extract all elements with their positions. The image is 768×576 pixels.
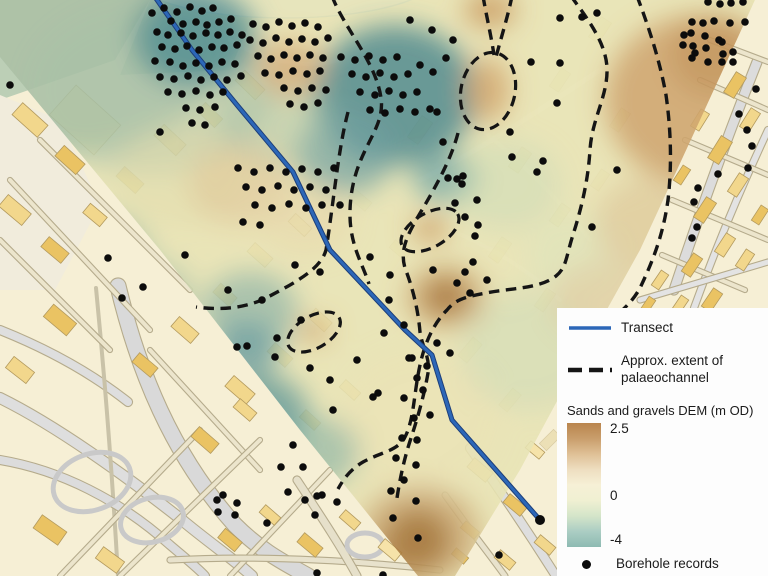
borehole-dot [214, 31, 222, 39]
borehole-dot [439, 138, 447, 146]
borehole-dot [156, 73, 164, 81]
borehole-dot [316, 67, 324, 75]
borehole-dot [224, 286, 232, 294]
borehole-dot [701, 32, 709, 40]
borehole-dot [718, 58, 726, 66]
borehole-dot [167, 17, 175, 25]
borehole-dot [231, 511, 239, 519]
borehole-dot [469, 258, 477, 266]
borehole-dot [495, 551, 503, 559]
borehole-dot [104, 254, 112, 262]
borehole-dot [406, 16, 414, 24]
borehole-dot [170, 75, 178, 83]
borehole-dot [201, 121, 209, 129]
borehole-dot [336, 201, 344, 209]
borehole-dot [459, 172, 467, 180]
dem-blob [412, 218, 448, 240]
borehole-dot-sample [582, 560, 591, 569]
dem-color-ramp-block: 2.5 0 -4 [567, 423, 768, 547]
borehole-dot [413, 88, 421, 96]
borehole-dot [444, 174, 452, 182]
borehole-dot [148, 9, 156, 17]
borehole-dot [446, 349, 454, 357]
borehole-dot [274, 182, 282, 190]
borehole-dot [290, 186, 298, 194]
borehole-dot [209, 4, 217, 12]
borehole-dot [226, 28, 234, 36]
borehole-dot [419, 386, 427, 394]
borehole-dot [385, 296, 393, 304]
borehole-dot [271, 353, 279, 361]
borehole-dot [398, 434, 406, 442]
borehole-dot [379, 56, 387, 64]
borehole-dot [539, 157, 547, 165]
borehole-dot [381, 109, 389, 117]
borehole-dot [729, 58, 737, 66]
borehole-dot [314, 99, 322, 107]
borehole-dot [613, 166, 621, 174]
borehole-dot [362, 73, 370, 81]
borehole-dot [389, 514, 397, 522]
ramp-max-label: 2.5 [610, 421, 629, 438]
borehole-dot [461, 213, 469, 221]
borehole-dot [298, 35, 306, 43]
borehole-dot [289, 67, 297, 75]
borehole-dot [374, 389, 382, 397]
borehole-dot [179, 20, 187, 28]
borehole-dot [726, 19, 734, 27]
borehole-dot [748, 142, 756, 150]
borehole-dot [679, 41, 687, 49]
borehole-dot [326, 376, 334, 384]
borehole-dot [449, 36, 457, 44]
borehole-dot [322, 186, 330, 194]
borehole-dot [680, 31, 688, 39]
borehole-dot [263, 519, 271, 527]
borehole-dot [386, 271, 394, 279]
borehole-dot [242, 183, 250, 191]
palaeochannel-dash-sample [567, 364, 615, 376]
legend-row-palaeochannel: Approx. extent of palaeochannel [567, 353, 768, 387]
borehole-dot [308, 84, 316, 92]
borehole-dot [251, 201, 259, 209]
borehole-dot [506, 128, 514, 136]
borehole-dot [741, 18, 749, 26]
borehole-dot [118, 294, 126, 302]
borehole-dot [412, 461, 420, 469]
borehole-dot [380, 329, 388, 337]
borehole-dot [220, 44, 228, 52]
borehole-dot [286, 100, 294, 108]
borehole-dot [188, 119, 196, 127]
borehole-dot [556, 14, 564, 22]
borehole-dot [366, 253, 374, 261]
borehole-dot [719, 50, 727, 58]
borehole-dot [266, 164, 274, 172]
borehole-dot [306, 51, 314, 59]
borehole-dot [215, 18, 223, 26]
map-figure: Transect Approx. extent of palaeochannel… [0, 0, 768, 576]
dem-blob [299, 321, 329, 341]
borehole-dot [693, 223, 701, 231]
borehole-dot [259, 39, 267, 47]
borehole-dot [164, 31, 172, 39]
dem-ramp-labels: 2.5 0 -4 [610, 423, 654, 547]
borehole-dot [300, 103, 308, 111]
borehole-dot [214, 508, 222, 516]
borehole-dot [718, 38, 726, 46]
borehole-dot [744, 164, 752, 172]
borehole-dot [208, 43, 216, 51]
borehole-dot [6, 81, 14, 89]
borehole-dot [285, 38, 293, 46]
borehole-dot [433, 339, 441, 347]
borehole-dot [238, 31, 246, 39]
borehole-dot [433, 108, 441, 116]
borehole-dot [280, 51, 288, 59]
borehole-dot [353, 356, 361, 364]
map-legend: Transect Approx. extent of palaeochannel… [557, 308, 768, 576]
borehole-dot [280, 84, 288, 92]
borehole-dot [429, 266, 437, 274]
borehole-dot [203, 21, 211, 29]
borehole-dot [231, 60, 239, 68]
borehole-dot [297, 316, 305, 324]
borehole-dot [223, 76, 231, 84]
borehole-dot [322, 86, 330, 94]
borehole-dot [186, 3, 194, 11]
borehole-dot [593, 9, 601, 17]
borehole-dot [400, 394, 408, 402]
borehole-dot [196, 106, 204, 114]
borehole-dot [262, 23, 270, 31]
borehole-dot [195, 46, 203, 54]
borehole-dot [356, 88, 364, 96]
borehole-dot [192, 59, 200, 67]
borehole-dot [426, 105, 434, 113]
borehole-dot [405, 354, 413, 362]
borehole-dot [413, 436, 421, 444]
borehole-dot [410, 414, 418, 422]
borehole-dot [442, 54, 450, 62]
borehole-dot [151, 57, 159, 65]
borehole-dot [258, 186, 266, 194]
borehole-dot [288, 22, 296, 30]
borehole-dot [301, 496, 309, 504]
borehole-dot [423, 362, 431, 370]
borehole-dot [192, 18, 200, 26]
borehole-dot [311, 511, 319, 519]
borehole-dot [183, 42, 191, 50]
borehole-dot [556, 59, 564, 67]
borehole-dot [689, 42, 697, 50]
borehole-dot [413, 374, 421, 382]
borehole-dot [301, 19, 309, 27]
borehole-dot [318, 201, 326, 209]
borehole-dot [298, 165, 306, 173]
borehole-dot [553, 99, 561, 107]
borehole-dot [213, 496, 221, 504]
borehole-dot [316, 268, 324, 276]
borehole-dot [392, 454, 400, 462]
borehole-dot [139, 283, 147, 291]
borehole-dot [211, 103, 219, 111]
borehole-dot [243, 342, 251, 350]
borehole-dot [160, 4, 168, 12]
borehole-dot [428, 26, 436, 34]
borehole-dot [416, 61, 424, 69]
borehole-dot [275, 18, 283, 26]
borehole-dot [348, 70, 356, 78]
borehole-dot [714, 170, 722, 178]
borehole-dot [393, 53, 401, 61]
borehole-dot [400, 476, 408, 484]
transect-line-sample [567, 323, 615, 333]
borehole-dot [254, 52, 262, 60]
borehole-dot [710, 17, 718, 25]
borehole-dot [735, 110, 743, 118]
borehole-dot [453, 279, 461, 287]
borehole-dot [303, 70, 311, 78]
ramp-mid-label: 0 [610, 488, 618, 505]
borehole-dot [688, 54, 696, 62]
borehole-dot [311, 38, 319, 46]
borehole-dot [205, 62, 213, 70]
borehole-dot [411, 108, 419, 116]
borehole-dot [233, 41, 241, 49]
transect-label: Transect [621, 320, 673, 337]
borehole-dot [461, 268, 469, 276]
borehole-dot [156, 128, 164, 136]
borehole-dot [182, 104, 190, 112]
borehole-dot [412, 497, 420, 505]
borehole-dot [181, 251, 189, 259]
borehole-dot [329, 406, 337, 414]
borehole-dot [246, 36, 254, 44]
borehole-dot [314, 168, 322, 176]
borehole-dot [333, 498, 341, 506]
borehole-dot [533, 168, 541, 176]
borehole-dot [237, 72, 245, 80]
borehole-dot [396, 105, 404, 113]
borehole-dot [153, 28, 161, 36]
borehole-dot [324, 34, 332, 42]
borehole-dot [376, 69, 384, 77]
borehole-dot [227, 15, 235, 23]
borehole-dot [688, 234, 696, 242]
borehole-dot [273, 334, 281, 342]
borehole-dot [536, 516, 544, 524]
borehole-dot [261, 69, 269, 77]
borehole-dot [508, 153, 516, 161]
borehole-dot [313, 492, 321, 500]
borehole-dot [471, 232, 479, 240]
borehole-dot [699, 19, 707, 27]
borehole-dot [284, 488, 292, 496]
borehole-dot [210, 73, 218, 81]
borehole-dot [387, 487, 395, 495]
borehole-dot [704, 58, 712, 66]
borehole-dot [306, 183, 314, 191]
borehole-dot [404, 70, 412, 78]
borehole-dot [250, 168, 258, 176]
borehole-dot [687, 29, 695, 37]
borehole-dot [385, 87, 393, 95]
borehole-dot [429, 68, 437, 76]
borehole-dot [218, 58, 226, 66]
legend-row-transect: Transect [567, 320, 768, 337]
borehole-dot [294, 87, 302, 95]
borehole-dot [164, 88, 172, 96]
borehole-dot [179, 62, 187, 70]
borehole-dot [171, 45, 179, 53]
borehole-dot [198, 7, 206, 15]
borehole-dot [233, 499, 241, 507]
borehole-dot [177, 29, 185, 37]
borehole-dot [716, 0, 724, 8]
borehole-dot [219, 491, 227, 499]
borehole-dot [473, 196, 481, 204]
borehole-dot [319, 54, 327, 62]
ramp-min-label: -4 [610, 532, 622, 549]
borehole-dot [330, 164, 338, 172]
borehole-dot [466, 289, 474, 297]
borehole-dot [192, 87, 200, 95]
borehole-dot [268, 204, 276, 212]
borehole-dot [365, 52, 373, 60]
borehole-dot [173, 8, 181, 16]
borehole-dot [158, 43, 166, 51]
borehole-dot [400, 321, 408, 329]
borehole-dot [184, 72, 192, 80]
borehole-dot [371, 91, 379, 99]
borehole-dot [578, 13, 586, 21]
borehole-dot [414, 534, 422, 542]
borehole-dot [337, 53, 345, 61]
borehole-dot [277, 463, 285, 471]
borehole-dot [690, 198, 698, 206]
borehole-dot [351, 56, 359, 64]
borehole-dot [314, 23, 322, 31]
palaeochannel-label: Approx. extent of palaeochannel [621, 353, 723, 387]
borehole-dot [458, 180, 466, 188]
borehole-dot [202, 29, 210, 37]
borehole-dot [306, 364, 314, 372]
borehole-dot [239, 218, 247, 226]
borehole-dot [289, 441, 297, 449]
borehole-dot [189, 32, 197, 40]
legend-row-borehole: Borehole records [567, 556, 768, 573]
borehole-dot [743, 126, 751, 134]
dem-blob [466, 58, 510, 122]
borehole-dot [275, 71, 283, 79]
borehole-dot [178, 90, 186, 98]
borehole-dot [729, 48, 737, 56]
borehole-dot [752, 85, 760, 93]
borehole-dot [474, 221, 482, 229]
borehole-dot [688, 18, 696, 26]
borehole-dot [451, 199, 459, 207]
borehole-dot [197, 76, 205, 84]
borehole-dot [694, 184, 702, 192]
borehole-dot [302, 204, 310, 212]
borehole-dot [702, 44, 710, 52]
borehole-dot [366, 106, 374, 114]
borehole-dot [285, 200, 293, 208]
borehole-dot [233, 343, 241, 351]
borehole-dot [299, 463, 307, 471]
borehole-dot [256, 221, 264, 229]
borehole-dot [483, 276, 491, 284]
borehole-dot [426, 411, 434, 419]
borehole-label: Borehole records [616, 556, 719, 573]
borehole-dot [258, 296, 266, 304]
borehole-dot [291, 261, 299, 269]
borehole-dot [166, 58, 174, 66]
borehole-dot [282, 168, 290, 176]
borehole-dot [249, 20, 257, 28]
borehole-dot [527, 58, 535, 66]
borehole-dot [390, 73, 398, 81]
dem-color-ramp [567, 423, 601, 547]
borehole-dot [399, 91, 407, 99]
borehole-dot [267, 55, 275, 63]
borehole-dot [219, 88, 227, 96]
dem-scale-title: Sands and gravels DEM (m OD) [567, 403, 768, 419]
borehole-dot [588, 223, 596, 231]
borehole-dot [234, 164, 242, 172]
borehole-dot [272, 34, 280, 42]
borehole-dot [293, 54, 301, 62]
borehole-dot [206, 91, 214, 99]
